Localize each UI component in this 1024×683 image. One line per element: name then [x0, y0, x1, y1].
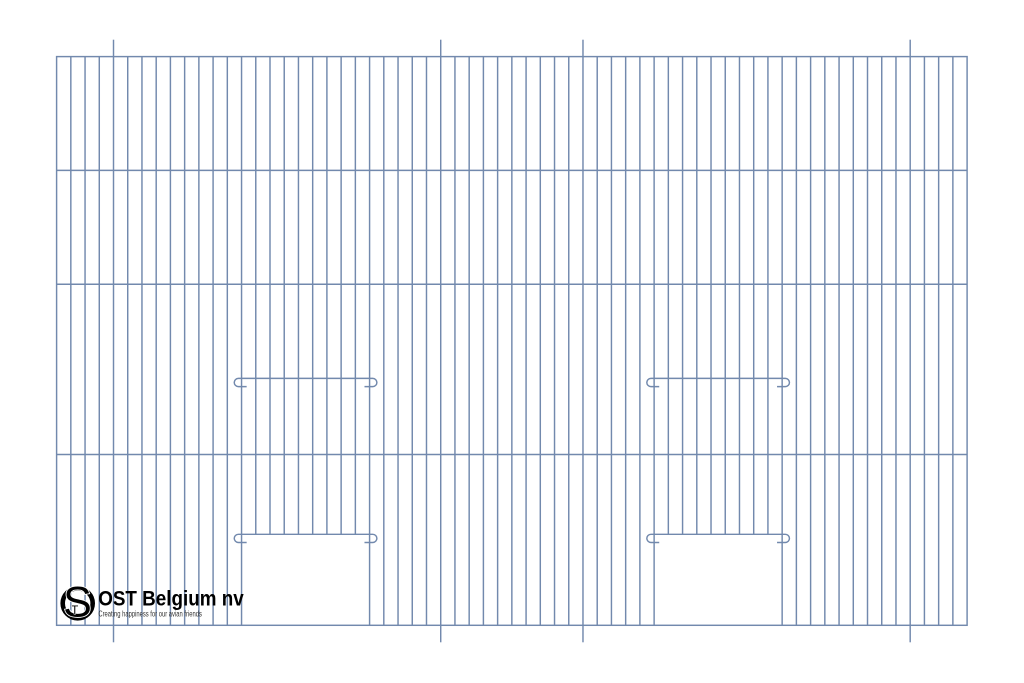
svg-text:S: S: [63, 579, 92, 627]
svg-text:OST Belgium nv: OST Belgium nv: [98, 587, 244, 610]
svg-text:T: T: [71, 605, 78, 617]
svg-text:Creating happiness for our avi: Creating happiness for our avian friends: [98, 610, 202, 619]
